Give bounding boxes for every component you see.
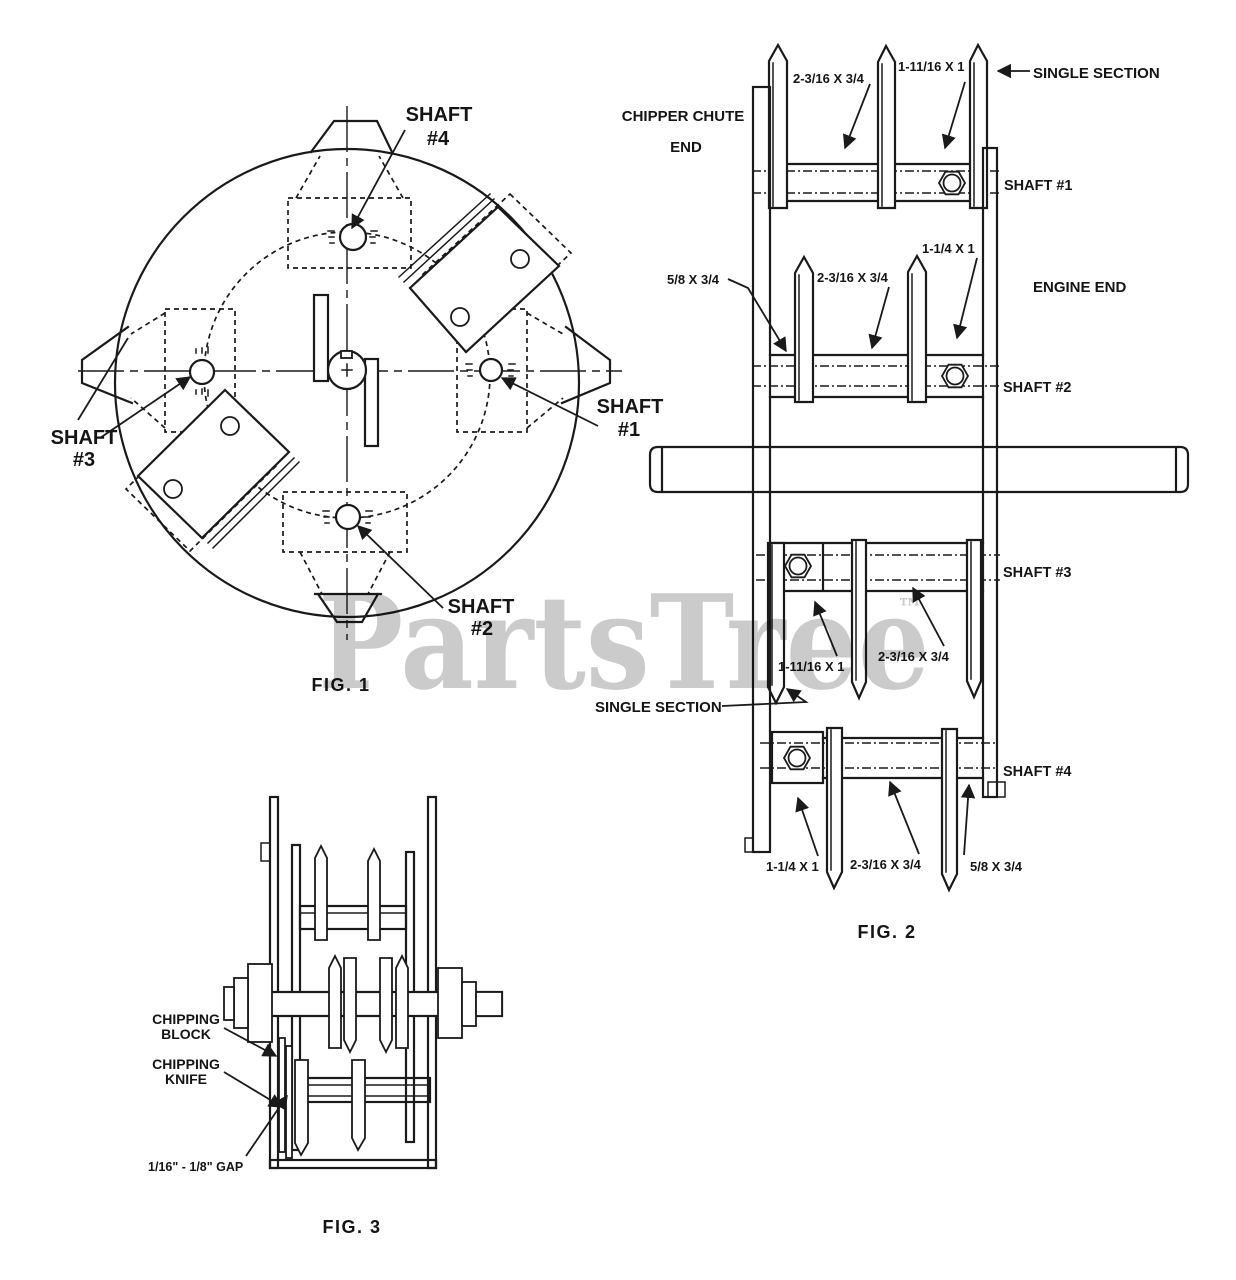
fig2-chipper-chute-end-plate bbox=[753, 87, 770, 852]
fig1-hub-keyway bbox=[341, 351, 352, 358]
fig2-shaft-assembly-view: CHIPPER CHUTE END 2-3/16 X 3/4 1-11/16 X… bbox=[595, 45, 1188, 942]
fig2-knife bbox=[878, 46, 895, 208]
fig3-housing-right-wall bbox=[428, 797, 436, 1168]
fig1-label-shaft3-line2: #3 bbox=[73, 449, 95, 471]
fig3-knife bbox=[352, 1060, 365, 1150]
fig2-label-engine-end: ENGINE END bbox=[1033, 279, 1127, 296]
fig3-shaft-collar-left bbox=[248, 964, 272, 1042]
fig3-knife bbox=[329, 956, 341, 1048]
watermark: PartsTree ™ bbox=[318, 566, 930, 719]
fig2-dim-row2b: 2-3/16 X 3/4 bbox=[817, 270, 889, 285]
watermark-text: PartsTree bbox=[318, 566, 930, 719]
fig1-leader-shaft1 bbox=[502, 378, 598, 426]
fig2-dim-row4b: 2-3/16 X 3/4 bbox=[850, 857, 922, 872]
fig2-knife bbox=[769, 45, 787, 208]
fig3-label-chipping-block-line2: BLOCK bbox=[161, 1026, 211, 1042]
fig2-knife bbox=[967, 540, 981, 697]
fig2-dim-row4c: 5/8 X 3/4 bbox=[970, 859, 1023, 874]
fig2-dim-row1a: 2-3/16 X 3/4 bbox=[793, 71, 865, 86]
fig2-leader-row2c bbox=[957, 258, 977, 338]
fig1-tab-right bbox=[562, 327, 610, 403]
fig1-blade-plate-upper-right bbox=[410, 207, 559, 352]
watermark-tm-symbol: ™ bbox=[897, 594, 923, 624]
fig1-label-shaft4-line2: #4 bbox=[427, 128, 450, 150]
fig2-leader-row4c bbox=[964, 785, 969, 855]
fig2-knife bbox=[795, 257, 813, 402]
fig3-housing-bottom bbox=[270, 1160, 436, 1168]
fig3-knife bbox=[380, 958, 392, 1052]
fig3-shaft-step-left bbox=[234, 978, 248, 1028]
fig3-knife bbox=[344, 958, 356, 1052]
fig2-row4-bars bbox=[823, 738, 983, 778]
fig2-leader-row2b bbox=[872, 287, 889, 348]
fig2-main-axle bbox=[650, 447, 1188, 492]
fig3-chipping-block bbox=[279, 1038, 285, 1152]
fig2-leader-row4a bbox=[798, 798, 818, 856]
fig2-label-shaft3: SHAFT #3 bbox=[1003, 565, 1072, 581]
fig2-leader-row2a bbox=[728, 279, 786, 351]
fig2-knife bbox=[827, 728, 842, 888]
fig3-knife bbox=[396, 956, 408, 1048]
fig3-chipping-knife bbox=[286, 1046, 292, 1158]
fig2-dim-row2a: 5/8 X 3/4 bbox=[667, 272, 720, 287]
fig3-caption: FIG. 3 bbox=[322, 1217, 381, 1237]
fig2-dim-row2c: 1-1/4 X 1 bbox=[922, 241, 975, 256]
fig2-engine-end-plate bbox=[983, 148, 997, 797]
fig2-label-shaft1: SHAFT #1 bbox=[1004, 178, 1073, 194]
fig2-label-chipper-chute-end: END bbox=[670, 139, 702, 156]
fig2-shaft4-bolt bbox=[784, 747, 810, 770]
fig1-blade-hole bbox=[451, 308, 469, 326]
fig3-shaft-stub-right bbox=[476, 992, 502, 1016]
fig2-dim-row1b: 1-11/16 X 1 bbox=[898, 59, 965, 74]
fig2-label-shaft2: SHAFT #2 bbox=[1003, 380, 1072, 396]
fig3-label-chipping-knife-line1: CHIPPING bbox=[152, 1056, 220, 1072]
fig3-chipper-detail-view: CHIPPING BLOCK CHIPPING KNIFE 1/16" - 1/… bbox=[148, 797, 502, 1237]
fig2-knife bbox=[942, 729, 957, 890]
fig3-knife bbox=[295, 1060, 308, 1155]
page: SHAFT #4 SHAFT #1 SHAFT #3 SHAFT #2 FIG.… bbox=[0, 0, 1236, 1280]
fig2-leader-row1b bbox=[945, 82, 965, 148]
fig2-label-shaft4: SHAFT #4 bbox=[1003, 764, 1072, 780]
fig1-shaft3-hole bbox=[190, 360, 214, 384]
fig3-label-chipping-knife-line2: KNIFE bbox=[165, 1071, 207, 1087]
fig1-shaft1-hole bbox=[480, 359, 502, 381]
fig2-shaft2-bolt bbox=[942, 365, 968, 388]
fig1-tab-left bbox=[82, 327, 132, 403]
fig2-dim-row4a: 1-1/4 X 1 bbox=[766, 859, 819, 874]
fig1-blade-plate-lower-left bbox=[138, 390, 289, 538]
fig3-knife bbox=[368, 849, 380, 940]
fig3-shaft-collar-right bbox=[438, 968, 462, 1038]
fig2-knife-single-section-top bbox=[970, 45, 987, 208]
fig2-shaft1-bolt bbox=[939, 172, 965, 195]
fig3-leader-chipping-knife bbox=[224, 1072, 282, 1107]
diagram-canvas: SHAFT #4 SHAFT #1 SHAFT #3 SHAFT #2 FIG.… bbox=[0, 0, 1236, 1280]
fig2-label-chipper-chute: CHIPPER CHUTE bbox=[622, 108, 745, 125]
fig1-tab-top bbox=[311, 121, 392, 152]
fig1-label-shaft4-line1: SHAFT bbox=[406, 104, 473, 126]
fig2-caption: FIG. 2 bbox=[857, 922, 916, 942]
fig1-blade-hole bbox=[164, 480, 182, 498]
fig1-blade-hole bbox=[221, 417, 239, 435]
fig2-left-plate-foot bbox=[745, 838, 753, 852]
fig3-label-chipping-block-line1: CHIPPING bbox=[152, 1011, 220, 1027]
fig1-label-shaft1-line1: SHAFT bbox=[597, 396, 664, 418]
fig3-knife bbox=[315, 846, 327, 940]
fig1-flail-bar-left bbox=[314, 295, 328, 381]
fig3-wall-bracket bbox=[261, 843, 270, 861]
fig1-leader-shaft4 bbox=[352, 130, 405, 228]
fig1-leader-shaft3-aux bbox=[78, 338, 128, 420]
fig2-leader-row4b bbox=[890, 782, 919, 854]
fig3-shaft-step-right bbox=[462, 982, 476, 1026]
fig1-shaft2-hole bbox=[336, 505, 360, 529]
fig1-label-shaft1-line2: #1 bbox=[618, 419, 640, 441]
fig3-shaft-stub-left bbox=[224, 987, 234, 1020]
fig2-knife bbox=[908, 256, 926, 402]
fig2-label-single-section-top: SINGLE SECTION bbox=[1033, 65, 1160, 82]
fig2-leader-row1a bbox=[845, 84, 870, 148]
fig1-label-shaft3-line1: SHAFT bbox=[51, 427, 118, 449]
fig3-label-gap: 1/16" - 1/8" GAP bbox=[148, 1160, 243, 1174]
fig1-blade-hole bbox=[511, 250, 529, 268]
